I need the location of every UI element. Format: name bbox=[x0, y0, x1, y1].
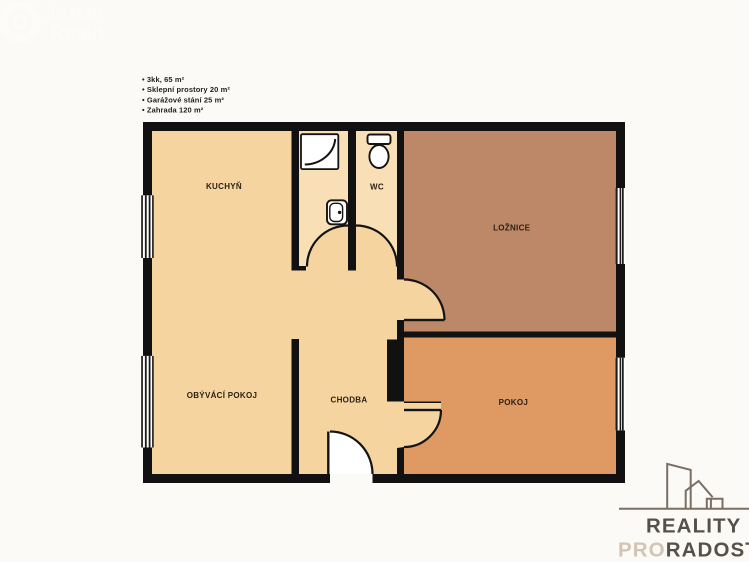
svg-text:CHODBA: CHODBA bbox=[331, 395, 368, 404]
svg-text:Realit: Realit bbox=[50, 23, 105, 45]
svg-text:KUCHYŇ: KUCHYŇ bbox=[206, 182, 242, 191]
svg-text:REALITY: REALITY bbox=[646, 515, 741, 538]
svg-text:• Zahrada 120 m²: • Zahrada 120 m² bbox=[142, 106, 204, 115]
svg-text:WC: WC bbox=[370, 182, 384, 191]
svg-text:OBÝVÁCÍ POKOJ: OBÝVÁCÍ POKOJ bbox=[187, 391, 258, 400]
svg-text:POKOJ: POKOJ bbox=[499, 398, 529, 407]
svg-text:Luxor: Luxor bbox=[50, 2, 106, 24]
svg-text:• 3kk, 65 m²: • 3kk, 65 m² bbox=[142, 75, 185, 84]
svg-text:• Sklepní prostory 20 m²: • Sklepní prostory 20 m² bbox=[142, 85, 230, 94]
svg-text:• Garážové stání 25 m²: • Garážové stání 25 m² bbox=[142, 95, 224, 104]
svg-text:PRORADOST: PRORADOST bbox=[618, 539, 749, 562]
svg-text:LOŽNICE: LOŽNICE bbox=[493, 224, 531, 233]
